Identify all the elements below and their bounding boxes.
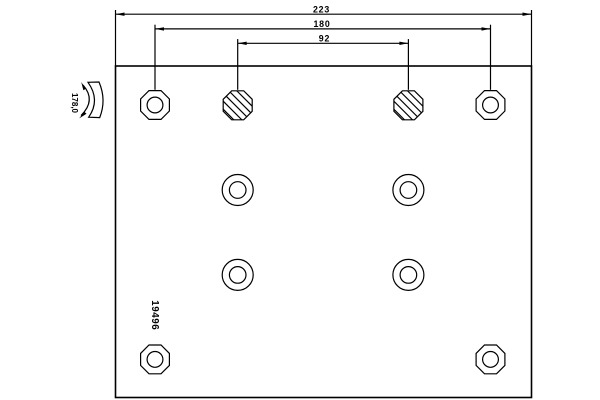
svg-text:178,0: 178,0: [70, 93, 79, 114]
svg-text:19496: 19496: [149, 300, 160, 330]
svg-text:180: 180: [313, 19, 330, 29]
svg-text:92: 92: [319, 34, 330, 44]
svg-text:223: 223: [313, 5, 330, 15]
